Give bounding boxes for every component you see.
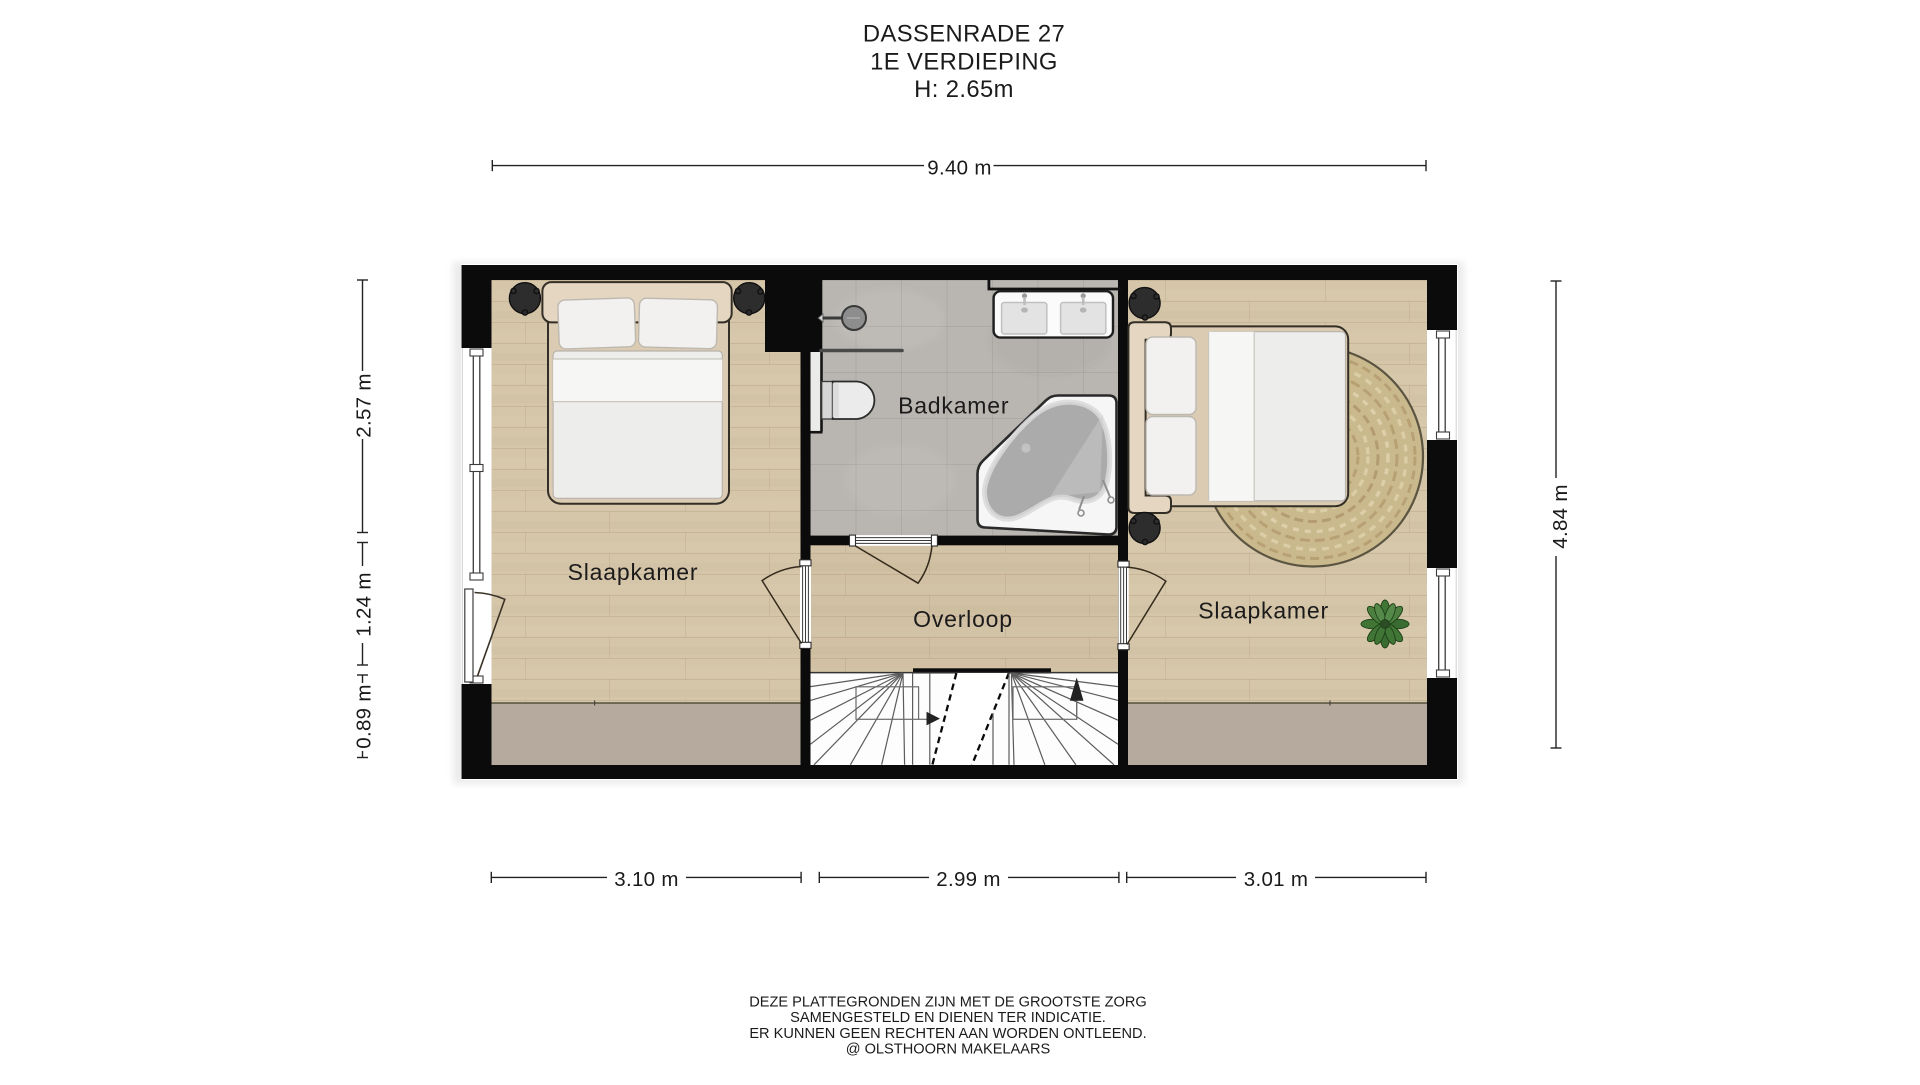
svg-text:1E VERDIEPING: 1E VERDIEPING xyxy=(870,48,1058,75)
svg-text:SAMENGESTELD EN DIENEN TER IND: SAMENGESTELD EN DIENEN TER INDICATIE. xyxy=(790,1010,1106,1026)
svg-text:Badkamer: Badkamer xyxy=(898,393,1009,419)
svg-text:1.24 m: 1.24 m xyxy=(353,572,376,636)
svg-text:2.57 m: 2.57 m xyxy=(353,373,376,437)
svg-text:@ OLSTHOORN MAKELAARS: @ OLSTHOORN MAKELAARS xyxy=(846,1042,1051,1058)
svg-text:9.40 m: 9.40 m xyxy=(927,157,991,180)
svg-text:H: 2.65m: H: 2.65m xyxy=(914,76,1014,103)
svg-text:0.89 m: 0.89 m xyxy=(353,684,376,748)
svg-text:ER KUNNEN GEEN RECHTEN AAN WOR: ER KUNNEN GEEN RECHTEN AAN WORDEN ONTLEE… xyxy=(749,1026,1146,1042)
svg-text:Slaapkamer: Slaapkamer xyxy=(568,559,699,585)
svg-text:Slaapkamer: Slaapkamer xyxy=(1198,598,1329,624)
svg-text:3.01 m: 3.01 m xyxy=(1244,868,1308,891)
svg-text:3.10 m: 3.10 m xyxy=(614,868,678,891)
svg-text:DASSENRADE 27: DASSENRADE 27 xyxy=(863,21,1065,48)
svg-text:4.84 m: 4.84 m xyxy=(1549,484,1572,548)
svg-text:DEZE PLATTEGRONDEN ZIJN MET DE: DEZE PLATTEGRONDEN ZIJN MET DE GROOTSTE … xyxy=(749,994,1147,1010)
svg-text:Overloop: Overloop xyxy=(913,606,1013,632)
svg-text:2.99 m: 2.99 m xyxy=(936,868,1000,891)
